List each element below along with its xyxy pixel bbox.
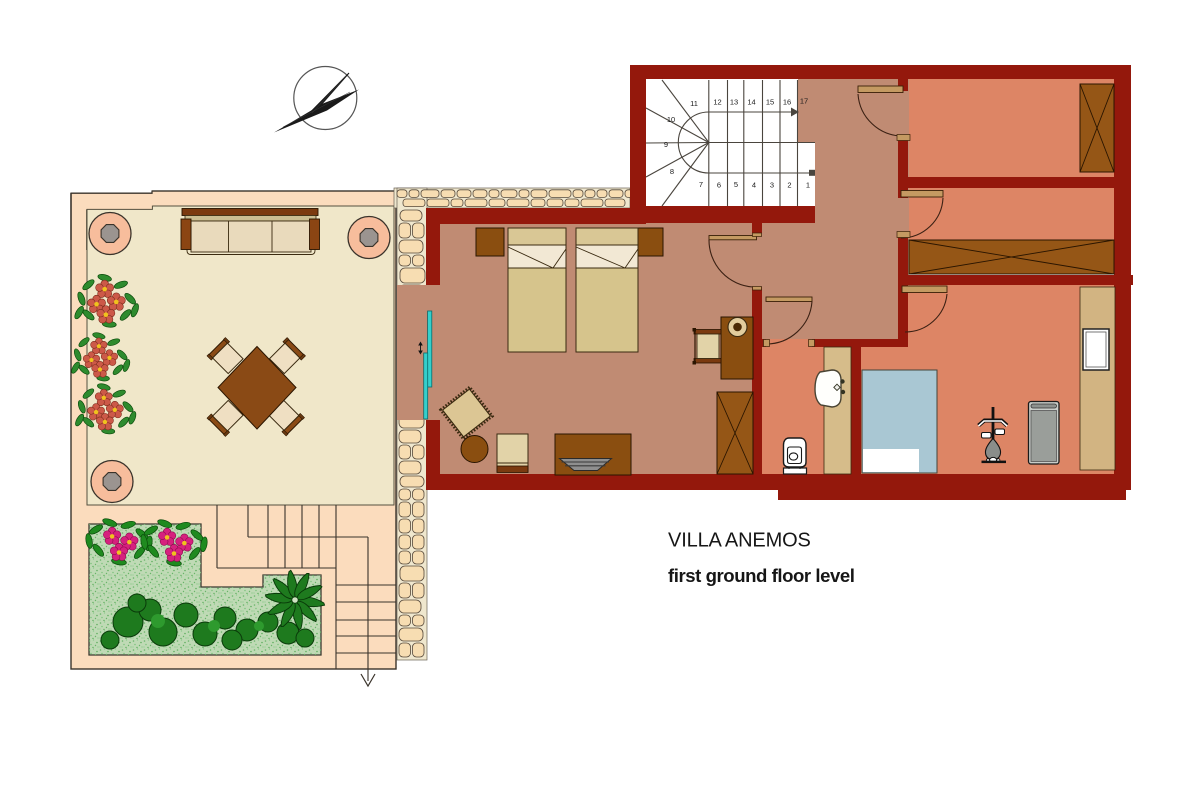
svg-text:16: 16 (783, 98, 791, 107)
svg-text:6: 6 (717, 181, 721, 190)
svg-text:1: 1 (806, 181, 810, 190)
svg-text:14: 14 (747, 98, 755, 107)
svg-text:VILLA ANEMOS: VILLA ANEMOS (668, 530, 811, 552)
svg-text:13: 13 (730, 98, 738, 107)
svg-text:5: 5 (734, 180, 738, 189)
svg-text:9: 9 (664, 140, 668, 149)
svg-text:first ground floor level: first ground floor level (668, 565, 855, 586)
svg-text:8: 8 (670, 167, 674, 176)
svg-text:2: 2 (787, 181, 791, 190)
svg-text:3: 3 (770, 181, 774, 190)
svg-text:4: 4 (752, 181, 756, 190)
svg-text:10: 10 (667, 115, 675, 124)
svg-text:11: 11 (690, 99, 698, 108)
svg-text:7: 7 (699, 180, 703, 189)
svg-text:15: 15 (766, 98, 774, 107)
svg-text:17: 17 (800, 97, 808, 106)
svg-text:12: 12 (713, 98, 721, 107)
